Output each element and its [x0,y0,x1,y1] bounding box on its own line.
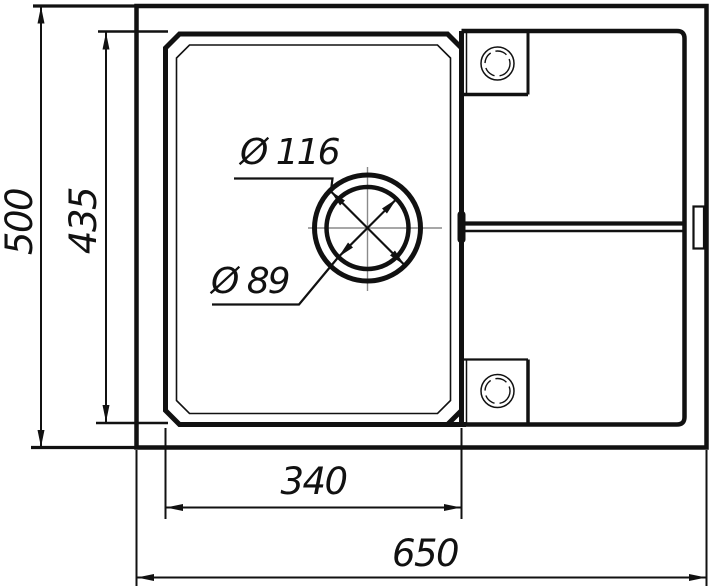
sink-dimension-drawing: Ø 116 Ø 89 500 435 340 650 [0,0,719,588]
right-edge-tab [694,207,705,249]
sink-dimension-drawing-page: Ø 116 Ø 89 500 435 340 650 [0,0,719,588]
dia116-label: Ø 116 [238,132,340,173]
dim435-label: 435 [62,188,105,254]
dim340-label: 340 [280,460,346,503]
dim500-label: 500 [0,189,41,255]
dia89-label: Ø 89 [209,261,289,302]
dim650-label: 650 [392,532,458,575]
drawing-background [0,0,719,588]
groove-left-cap [458,211,466,243]
